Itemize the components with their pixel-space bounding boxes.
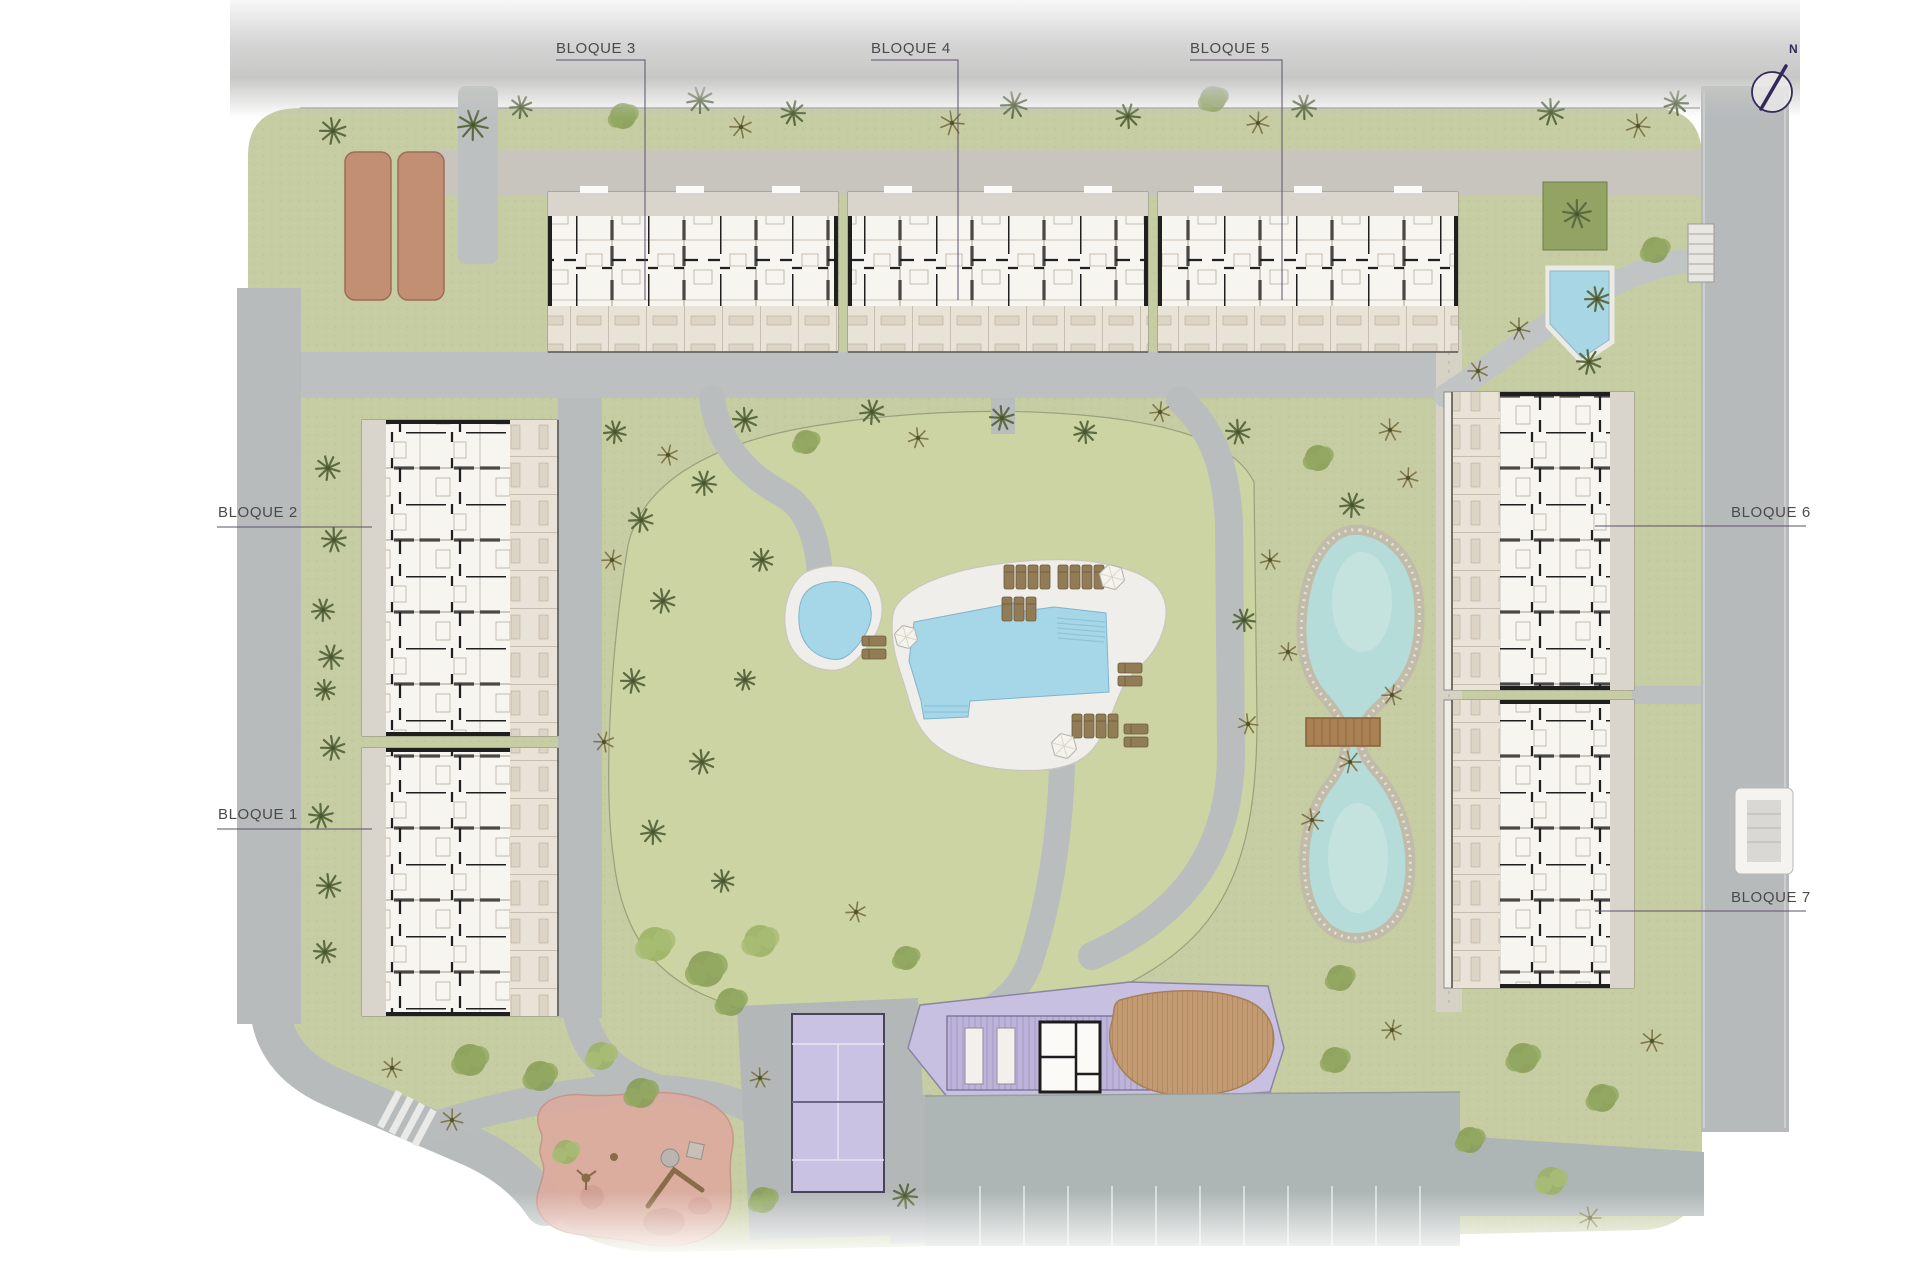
sun-lounger (1014, 597, 1024, 621)
path-west-vertical (558, 398, 602, 1018)
siteplan-graphic (0, 0, 1920, 1280)
petanque-court-2 (997, 1028, 1015, 1084)
playground (537, 1092, 733, 1245)
north-label: N (1789, 42, 1798, 56)
walkway-esplanade (252, 352, 1460, 398)
sun-lounger (1072, 714, 1082, 738)
sun-lounger (1016, 565, 1026, 589)
pergola-canopy-2 (398, 152, 444, 300)
palm-tree (687, 88, 713, 113)
petanque-court-1 (965, 1028, 983, 1084)
sun-lounger (1124, 737, 1148, 747)
lake-highlight-bottom (1328, 803, 1388, 913)
sun-lounger (862, 649, 886, 659)
building-bloque-4 (848, 186, 1148, 352)
sun-lounger (1118, 676, 1142, 686)
parking-lot (925, 1092, 1460, 1246)
label-bloque-3: BLOQUE 3 (556, 40, 636, 57)
sun-lounger (1096, 714, 1106, 738)
sun-lounger (1004, 565, 1014, 589)
building-bloque-5 (1158, 186, 1458, 352)
label-bloque-1: BLOQUE 1 (218, 806, 298, 823)
sun-lounger (1040, 565, 1050, 589)
road-left (237, 288, 301, 1024)
pool-house (1040, 1022, 1100, 1092)
sun-lounger (1082, 565, 1092, 589)
road-top-access (430, 150, 1704, 196)
access-ramp (1735, 788, 1793, 874)
label-bloque-7: BLOQUE 7 (1731, 889, 1811, 906)
sun-lounger (1124, 724, 1148, 734)
wooden-deck (1110, 991, 1274, 1096)
building-bloque-7 (1444, 700, 1634, 988)
sun-lounger (1084, 714, 1094, 738)
label-bloque-4: BLOQUE 4 (871, 40, 951, 57)
siteplan-canvas: BLOQUE 3 BLOQUE 4 BLOQUE 5 BLOQUE 2 BLOQ… (0, 0, 1920, 1280)
building-bloque-3 (548, 186, 838, 352)
playground-surface (537, 1092, 733, 1245)
lake-highlight-top (1332, 552, 1392, 652)
pergola-canopy-1 (345, 152, 391, 300)
stairs (1688, 224, 1714, 282)
sun-lounger (1118, 663, 1142, 673)
building-bloque-6 (1444, 392, 1634, 690)
wooden-bridge (1306, 718, 1380, 746)
sun-lounger (1026, 597, 1036, 621)
building-bloque-1 (362, 748, 558, 1016)
sun-lounger (1070, 565, 1080, 589)
sun-lounger (1028, 565, 1038, 589)
community-area (908, 982, 1284, 1102)
label-bloque-5: BLOQUE 5 (1190, 40, 1270, 57)
label-bloque-2: BLOQUE 2 (218, 504, 298, 521)
label-bloque-6: BLOQUE 6 (1731, 504, 1811, 521)
sun-lounger (862, 636, 886, 646)
sun-lounger (1108, 714, 1118, 738)
sun-lounger (1002, 597, 1012, 621)
sun-lounger (1058, 565, 1068, 589)
building-bloque-2 (362, 420, 558, 736)
